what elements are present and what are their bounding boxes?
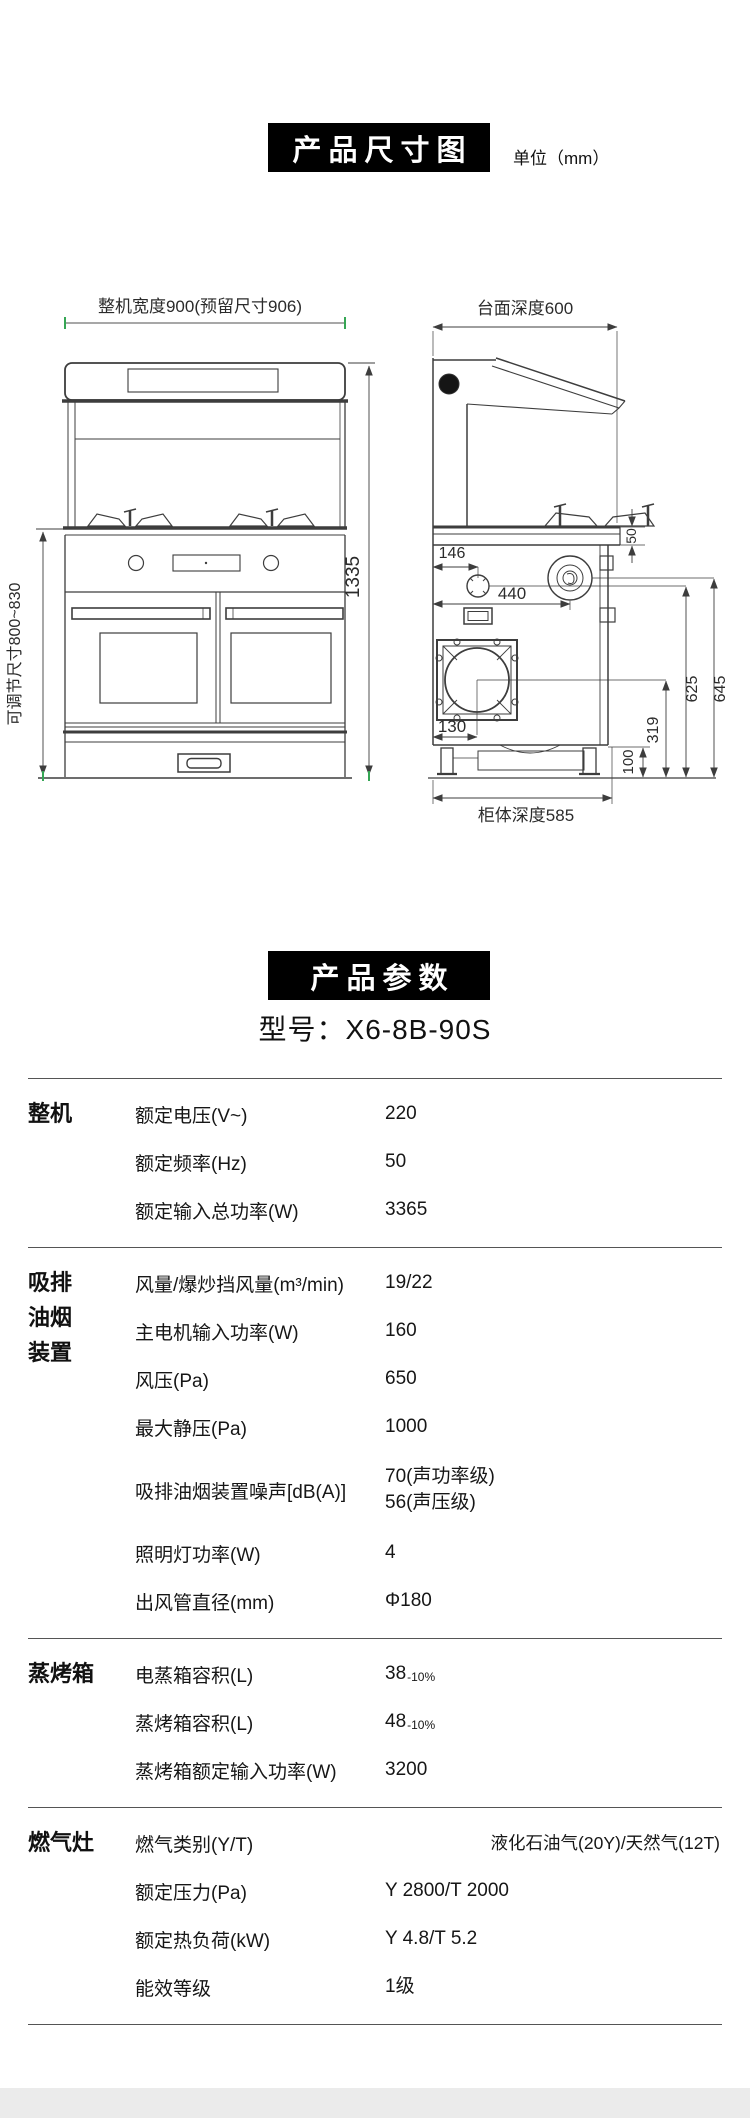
param-category-line: 蒸烤箱 — [28, 1656, 135, 1691]
front-adjustable-label: 可调节尺寸800~830 — [6, 583, 24, 726]
param-group: 整机额定电压(V~)220额定频率(Hz)50额定输入总功率(W)3365 — [28, 1078, 722, 1247]
param-name: 主电机输入功率(W) — [135, 1318, 385, 1345]
param-row: 燃气类别(Y/T)液化石油气(20Y)/天然气(12T) — [135, 1819, 722, 1867]
drawer-handle — [178, 754, 230, 772]
param-name: 蒸烤箱额定输入功率(W) — [135, 1757, 385, 1784]
param-name: 额定频率(Hz) — [135, 1149, 385, 1176]
param-category-line: 油烟 — [28, 1300, 135, 1335]
param-category: 蒸烤箱 — [28, 1650, 135, 1794]
product-spec-page: 产品尺寸图 单位（mm） 整机宽度900(预留尺寸906) — [0, 0, 750, 2118]
valve-circle — [548, 556, 592, 600]
param-category-line: 整机 — [28, 1096, 135, 1131]
param-row: 蒸烤箱容积(L)48-10% — [135, 1698, 722, 1746]
param-value: 1级 — [385, 1974, 722, 2000]
param-value: 160 — [385, 1318, 722, 1344]
right-door-handle — [226, 608, 343, 619]
param-row: 吸排油烟装置噪声[dB(A)]70(声功率级)56(声压级) — [135, 1451, 722, 1529]
param-value: 4 — [385, 1540, 722, 1566]
param-value-main: 38 — [385, 1663, 406, 1684]
params-table: 整机额定电压(V~)220额定频率(Hz)50额定输入总功率(W)3365吸排油… — [28, 1078, 722, 2026]
exhaust-outlet-dot — [439, 374, 459, 394]
right-knob — [264, 556, 279, 571]
param-name: 出风管直径(mm) — [135, 1588, 385, 1615]
dimension-section-title: 产品尺寸图 — [268, 123, 490, 172]
param-row: 额定压力(Pa)Y 2800/T 2000 — [135, 1867, 722, 1915]
param-row: 风量/爆炒挡风量(m³/min)19/22 — [135, 1259, 722, 1307]
dim-50: 50 — [623, 528, 639, 544]
dim-319: 319 — [645, 717, 662, 744]
param-value: 3365 — [385, 1197, 722, 1223]
param-value: 38-10% — [385, 1661, 722, 1688]
param-value: 50 — [385, 1149, 722, 1175]
param-name: 风量/爆炒挡风量(m³/min) — [135, 1270, 385, 1297]
param-row: 出风管直径(mm)Φ180 — [135, 1577, 722, 1625]
dim-130: 130 — [438, 717, 466, 736]
param-category-line: 燃气灶 — [28, 1825, 135, 1860]
param-value-subscript: -10% — [407, 1670, 435, 1684]
param-category: 整机 — [28, 1090, 135, 1234]
table-bottom-rule — [28, 2024, 722, 2026]
burner-grate-side — [545, 504, 654, 526]
param-value: 70(声功率级)56(声压级) — [385, 1464, 722, 1516]
footer-bar — [0, 2088, 750, 2118]
param-value: 液化石油气(20Y)/天然气(12T) — [385, 1830, 722, 1856]
param-name: 照明灯功率(W) — [135, 1540, 385, 1567]
param-group: 吸排油烟装置风量/爆炒挡风量(m³/min)19/22主电机输入功率(W)160… — [28, 1247, 722, 1638]
param-row: 额定热负荷(kW)Y 4.8/T 5.2 — [135, 1915, 722, 1963]
param-name: 最大静压(Pa) — [135, 1414, 385, 1441]
dim-440: 440 — [498, 584, 526, 603]
param-group: 蒸烤箱电蒸箱容积(L)38-10%蒸烤箱容积(L)48-10%蒸烤箱额定输入功率… — [28, 1638, 722, 1807]
dim-100: 100 — [620, 749, 637, 774]
param-value-main: 48 — [385, 1711, 406, 1732]
param-value: Y 2800/T 2000 — [385, 1878, 722, 1904]
left-knob — [129, 556, 144, 571]
param-row: 照明灯功率(W)4 — [135, 1529, 722, 1577]
param-name: 额定电压(V~) — [135, 1101, 385, 1128]
param-row: 额定电压(V~)220 — [135, 1090, 722, 1138]
param-category: 燃气灶 — [28, 1819, 135, 2011]
param-value: 48-10% — [385, 1709, 722, 1736]
front-height-label: 1335 — [343, 556, 364, 598]
side-view: 台面深度600 — [428, 299, 729, 825]
param-name: 蒸烤箱容积(L) — [135, 1709, 385, 1736]
param-value: Φ180 — [385, 1588, 722, 1614]
param-value: 3200 — [385, 1757, 722, 1783]
param-name: 燃气类别(Y/T) — [135, 1830, 385, 1857]
param-row: 主电机输入功率(W)160 — [135, 1307, 722, 1355]
param-name: 额定热负荷(kW) — [135, 1926, 385, 1953]
param-row: 额定输入总功率(W)3365 — [135, 1186, 722, 1234]
base-plinth — [437, 745, 600, 774]
param-name: 能效等级 — [135, 1974, 385, 2001]
param-value-line: 70(声功率级) — [385, 1464, 722, 1490]
burner-grates-front — [88, 509, 314, 526]
dim-625: 625 — [684, 676, 701, 703]
param-value: 19/22 — [385, 1270, 722, 1296]
unit-label: 单位（mm） — [513, 144, 609, 169]
param-value: 650 — [385, 1366, 722, 1392]
param-category-line: 装置 — [28, 1335, 135, 1370]
param-category-line: 吸排 — [28, 1265, 135, 1300]
param-row: 蒸烤箱额定输入功率(W)3200 — [135, 1746, 722, 1794]
param-row: 电蒸箱容积(L)38-10% — [135, 1650, 722, 1698]
param-name: 额定压力(Pa) — [135, 1878, 385, 1905]
front-view: 整机宽度900(预留尺寸906) — [6, 297, 375, 781]
right-door-window — [231, 633, 331, 703]
model-number: 型号：X6-8B-90S — [0, 1008, 750, 1048]
side-depth-label: 台面深度600 — [477, 299, 573, 318]
left-door-handle — [72, 608, 210, 619]
dim-146: 146 — [439, 545, 466, 562]
param-name: 电蒸箱容积(L) — [135, 1661, 385, 1688]
dim-645: 645 — [712, 676, 729, 703]
param-row: 能效等级1级 — [135, 1963, 722, 2011]
param-value: 1000 — [385, 1414, 722, 1440]
param-row: 额定频率(Hz)50 — [135, 1138, 722, 1186]
param-name: 额定输入总功率(W) — [135, 1197, 385, 1224]
side-cabinet-depth-label: 柜体深度585 — [478, 806, 574, 825]
param-row: 风压(Pa)650 — [135, 1355, 722, 1403]
params-section-title: 产品参数 — [268, 951, 490, 1000]
param-row: 最大静压(Pa)1000 — [135, 1403, 722, 1451]
param-name: 风压(Pa) — [135, 1366, 385, 1393]
param-name: 吸排油烟装置噪声[dB(A)] — [135, 1477, 385, 1504]
left-door-window — [100, 633, 197, 703]
param-value-subscript: -10% — [407, 1718, 435, 1732]
dimension-drawing: 整机宽度900(预留尺寸906) — [0, 290, 750, 850]
param-value-line: 56(声压级) — [385, 1490, 722, 1516]
param-group: 燃气灶燃气类别(Y/T)液化石油气(20Y)/天然气(12T)额定压力(Pa)Y… — [28, 1807, 722, 2024]
param-value: 220 — [385, 1101, 722, 1127]
param-category: 吸排油烟装置 — [28, 1259, 135, 1625]
param-value: Y 4.8/T 5.2 — [385, 1926, 722, 1952]
front-width-label: 整机宽度900(预留尺寸906) — [98, 297, 302, 316]
